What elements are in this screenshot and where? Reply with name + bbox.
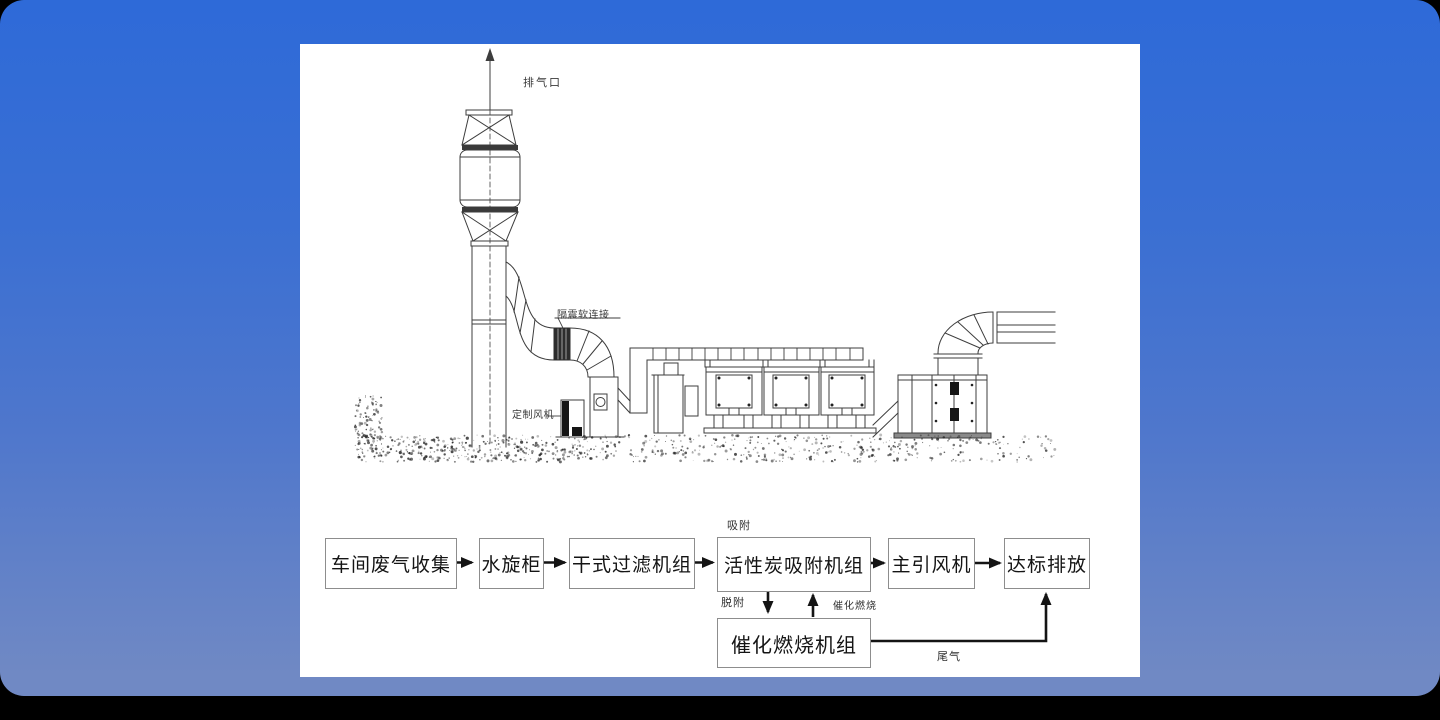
ground-stipple xyxy=(354,395,1056,463)
duct-elbow-from-stack xyxy=(506,262,554,360)
flow-box-main-draft-fan: 主引风机 xyxy=(888,538,975,589)
flow-box-water-spin-cabinet: 水旋柜 xyxy=(479,538,544,589)
flow-box-compliant-discharge: 达标排放 xyxy=(1004,538,1090,589)
arrow-tail-gas xyxy=(869,594,1046,641)
up-arrow-icon xyxy=(486,48,495,61)
bank-to-unit-duct xyxy=(873,401,898,437)
custom-fan-unit xyxy=(547,377,630,437)
app-window: 排气口 隔震软连接 定制风机 车间废气收集 水旋柜 干式过滤机组 活性炭吸附机组… xyxy=(0,0,1440,696)
exhaust-stack xyxy=(460,48,520,447)
content-panel: 排气口 隔震软连接 定制风机 车间废气收集 水旋柜 干式过滤机组 活性炭吸附机组… xyxy=(300,44,1140,677)
outlet-elbow xyxy=(938,312,993,353)
desorption-label: 脱附 xyxy=(721,594,745,610)
flow-box-catalytic-combustion-unit: 催化燃烧机组 xyxy=(717,618,871,668)
tail-gas-label: 尾气 xyxy=(937,648,961,664)
flexible-connection-label: 隔震软连接 xyxy=(557,306,610,321)
adsorption-units xyxy=(704,367,876,433)
manifold-duct xyxy=(630,348,874,367)
duct-elbow-to-fan xyxy=(570,328,614,377)
outlet-pipes xyxy=(993,312,1055,343)
flow-box-activated-carbon-unit: 活性炭吸附机组 xyxy=(717,537,871,592)
catalytic-combustion-label: 催化燃烧 xyxy=(833,597,877,612)
dry-filter-box xyxy=(652,363,698,433)
riser-duct xyxy=(630,348,647,413)
flow-box-workshop-gas-collection: 车间废气收集 xyxy=(325,538,457,589)
exhaust-outlet-label: 排气口 xyxy=(523,74,562,90)
catalytic-combustion-cabinet xyxy=(894,354,991,438)
flow-box-dry-filter-unit: 干式过滤机组 xyxy=(569,538,695,589)
adsorption-label: 吸附 xyxy=(727,517,751,533)
custom-fan-label: 定制风机 xyxy=(512,406,554,421)
